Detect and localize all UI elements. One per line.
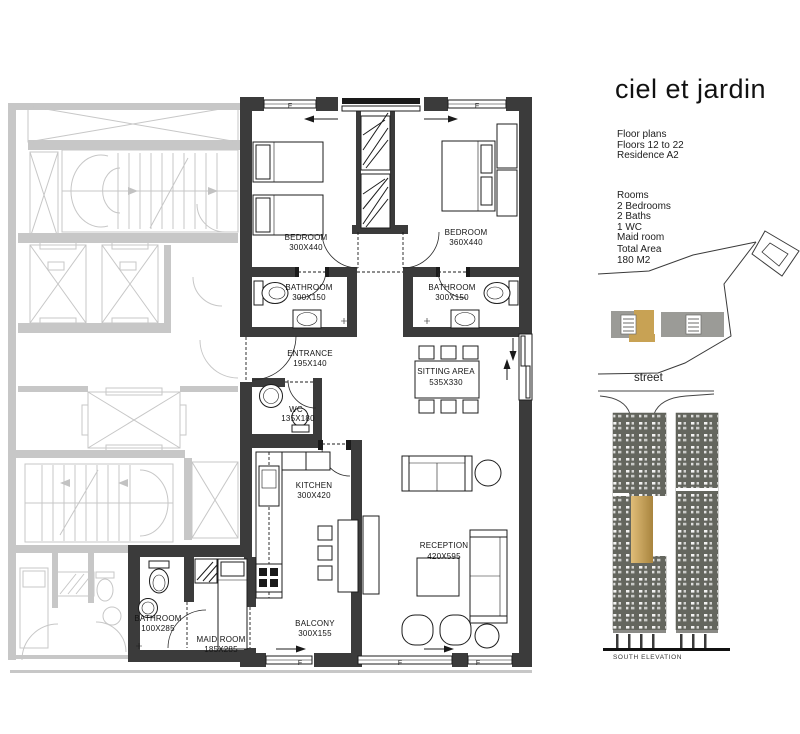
site-core-icon xyxy=(686,315,701,334)
site-unit-highlight-tab xyxy=(629,334,655,342)
elevation-floor-break xyxy=(676,488,718,491)
side-graphics xyxy=(560,0,800,734)
room-dims: 360X440 xyxy=(449,238,483,247)
stove-icon xyxy=(256,564,282,592)
window-label: F xyxy=(288,103,292,110)
elevation-ground-floor xyxy=(611,630,723,649)
floor-info-block: Floor plans Floors 12 to 22 Residence A2 xyxy=(617,130,684,162)
room-dims: 185X285 xyxy=(204,645,238,654)
room-dims: 535X330 xyxy=(429,378,463,387)
elevation-tower-east xyxy=(676,413,718,632)
room-dims: 300X155 xyxy=(298,629,332,638)
bed-icon xyxy=(253,142,323,235)
room-label: SITTING AREA xyxy=(417,367,475,376)
window-label: F xyxy=(398,660,402,667)
console-table-icon xyxy=(363,516,379,594)
armchair-icon xyxy=(402,615,433,645)
project-title: ciel et jardin xyxy=(615,74,766,105)
sink-icon xyxy=(260,385,283,408)
room-label: KITCHEN xyxy=(296,481,333,490)
coffee-table-icon xyxy=(417,558,459,596)
total-area-line: Total Area xyxy=(617,245,661,256)
room-label: WC xyxy=(289,405,303,414)
room-dims: 300X420 xyxy=(297,491,331,500)
room-dims: 100X285 xyxy=(141,624,175,633)
side-table-icon xyxy=(475,460,501,486)
sink-icon xyxy=(424,310,479,328)
floor-info-line: Floor plans xyxy=(617,130,684,141)
elevation-label: SOUTH ELEVATION xyxy=(613,654,682,661)
side-table-icon xyxy=(475,624,499,648)
window-label: F xyxy=(475,103,479,110)
room-dims: 420X595 xyxy=(427,552,461,561)
site-core-icon xyxy=(621,315,636,334)
armchair-icon xyxy=(440,615,471,645)
room-dims: 300X440 xyxy=(289,243,323,252)
room-label: ENTRANCE xyxy=(287,349,333,358)
room-dims: 195X140 xyxy=(293,359,327,368)
floor-plan-drawing: BEDROOM 300X440 BEDROOM 360X440 BATHROOM… xyxy=(0,0,560,734)
closet-icon xyxy=(195,559,217,583)
room-dims: 135X180 xyxy=(281,414,315,423)
toilet-icon xyxy=(149,561,169,593)
south-elevation xyxy=(603,413,730,651)
room-dims: 300X150 xyxy=(435,293,469,302)
window-label: F xyxy=(476,660,480,667)
room-dims: 300X150 xyxy=(292,293,326,302)
bed-icon xyxy=(442,124,517,216)
sink-icon xyxy=(293,310,347,328)
room-label: RECEPTION xyxy=(420,541,468,550)
elevation-unit-highlight xyxy=(631,496,653,563)
floor-info-line: Residence A2 xyxy=(617,151,684,162)
site-unit-highlight xyxy=(634,310,654,336)
rooms-info-block: Rooms 2 Bedrooms 2 Baths 1 WC Maid room xyxy=(617,191,671,244)
wardrobe-icon xyxy=(361,113,390,228)
floorplan-sheet: BEDROOM 300X440 BEDROOM 360X440 BATHROOM… xyxy=(0,0,800,734)
site-neighbor-building xyxy=(752,231,799,276)
street-lines xyxy=(598,391,714,414)
kitchen-island-icon xyxy=(318,520,358,592)
window-label: F xyxy=(298,660,302,667)
rooms-info-line: Rooms xyxy=(617,191,671,202)
street-label: street xyxy=(634,372,663,384)
total-area-block: Total Area 180 M2 xyxy=(617,245,661,266)
room-label: BEDROOM xyxy=(445,228,488,237)
elevation-floor-break xyxy=(613,493,629,496)
elevation-ground-line xyxy=(603,648,730,651)
room-label: BEDROOM xyxy=(285,233,328,242)
rooms-info-line: Maid room xyxy=(617,233,671,244)
room-label: MAID ROOM xyxy=(197,635,246,644)
rooms-info-line: 2 Baths xyxy=(617,212,671,223)
sofa-icon xyxy=(402,456,472,491)
room-label: BATHROOM xyxy=(134,614,181,623)
sofa-icon xyxy=(470,530,507,623)
toilet-icon xyxy=(254,281,288,305)
total-area-line: 180 M2 xyxy=(617,256,661,267)
room-label: BATHROOM xyxy=(428,283,475,292)
toilet-icon xyxy=(484,281,518,305)
elevation-notch xyxy=(653,496,668,556)
room-label: BALCONY xyxy=(295,619,335,628)
room-label: BATHROOM xyxy=(285,283,332,292)
